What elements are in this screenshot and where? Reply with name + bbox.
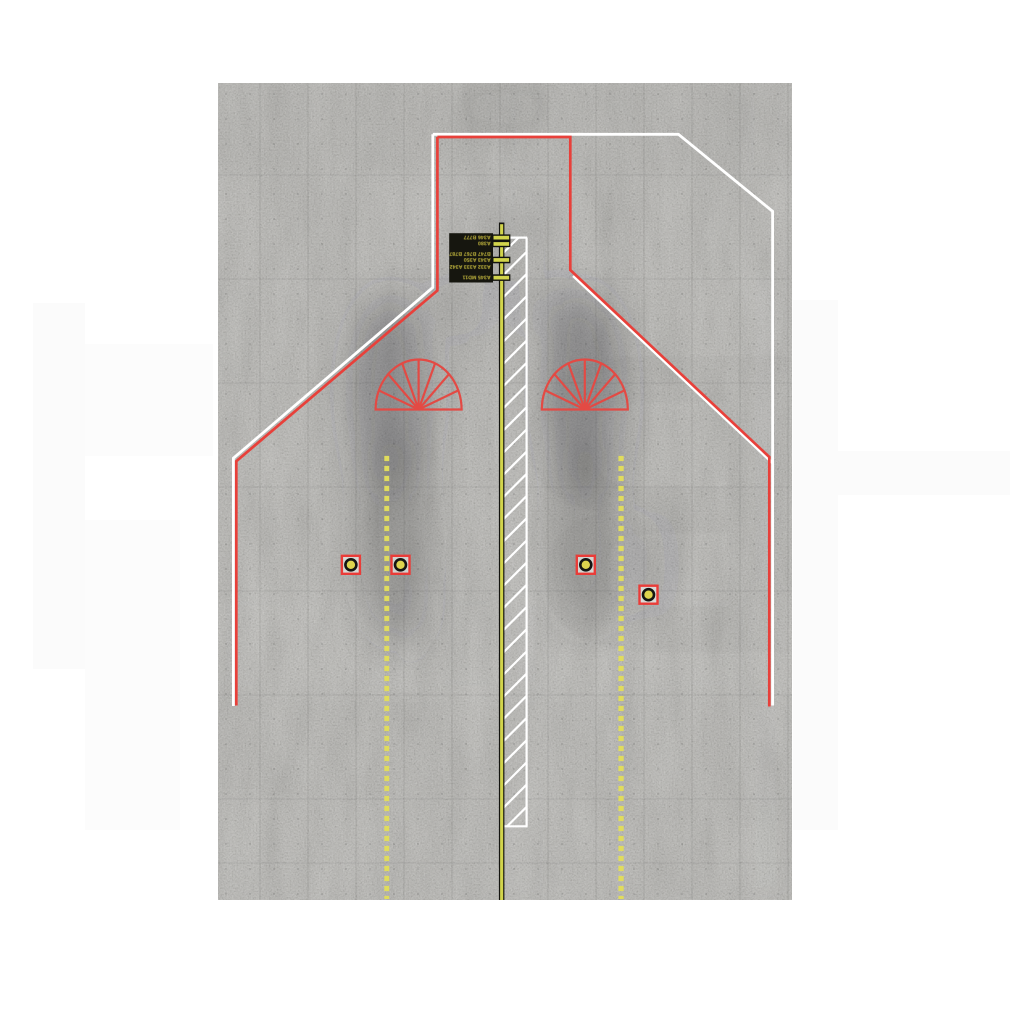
svg-text:A345 MD11: A345 MD11 <box>462 274 490 280</box>
svg-text:A332 A333 A342: A332 A333 A342 <box>450 263 491 269</box>
svg-text:B747 B767 B787: B747 B767 B787 <box>449 250 491 256</box>
svg-text:A346 B777: A346 B777 <box>464 234 491 240</box>
